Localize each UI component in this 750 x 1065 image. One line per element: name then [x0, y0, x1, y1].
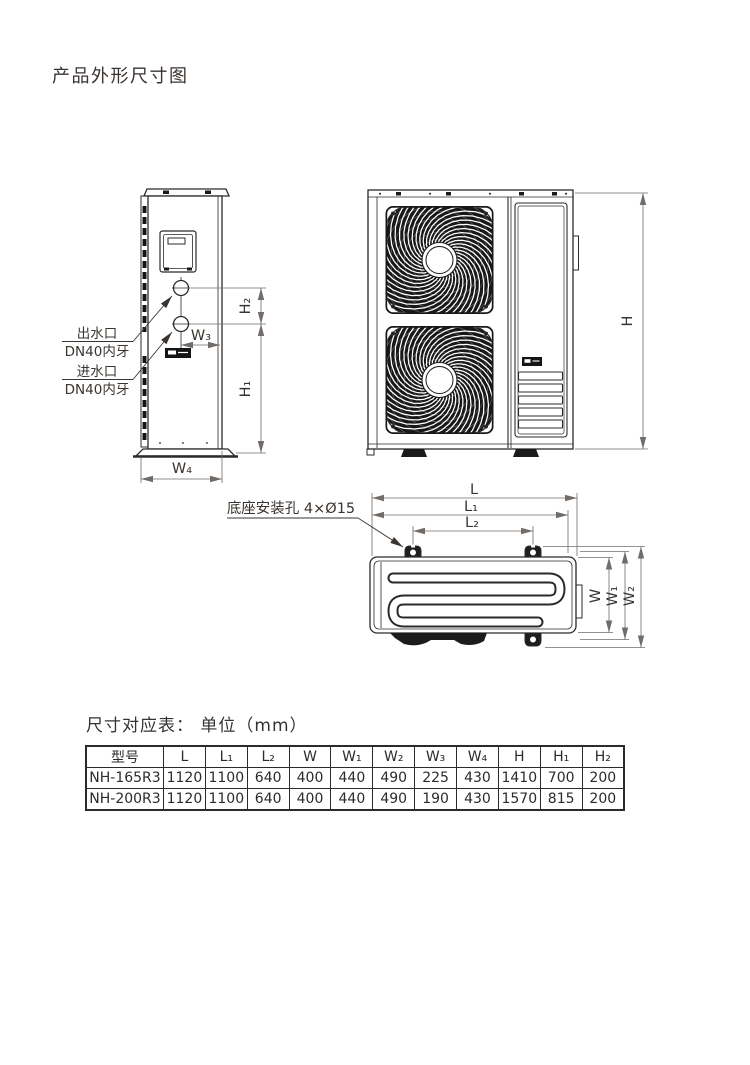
col-header-w1: W₁	[331, 746, 373, 768]
dimension-table-section: 尺寸对应表： 单位（mm） 型号 L L₁ L₂ W W₁ W₂ W₃ W₄ H…	[85, 711, 645, 811]
outlet-spec-label: DN40内牙	[65, 344, 130, 360]
col-header-w4: W₄	[457, 746, 499, 768]
dimension-drawings: H₂ H₁ W₃ W₄ 出水口 DN40内牙 进水口 DN40内牙	[0, 0, 750, 700]
front-foot-left	[401, 449, 427, 457]
side-handle	[573, 236, 579, 270]
mounting-tab-bottom	[525, 633, 541, 646]
dim-label-w: W	[588, 589, 604, 603]
dim-label-w2: W₂	[622, 586, 638, 606]
side-nameplate	[165, 348, 191, 358]
table-row: NH-165R3 1120 1100 640 400 440 490 225 4…	[86, 768, 624, 789]
col-header-h1: H₁	[540, 746, 582, 768]
col-header-l2: L₂	[247, 746, 289, 768]
front-view-drawing	[365, 185, 579, 457]
col-header-w3: W₃	[415, 746, 457, 768]
cell-value: 490	[373, 789, 415, 811]
cell-value: 640	[247, 768, 289, 789]
col-header-w: W	[289, 746, 331, 768]
cell-value: 1570	[498, 789, 540, 811]
cell-value: 640	[247, 789, 289, 811]
dim-label-w4: W₄	[172, 461, 192, 477]
col-header-w2: W₂	[373, 746, 415, 768]
col-header-h: H	[498, 746, 540, 768]
cell-value: 200	[582, 789, 624, 811]
front-foot-right	[513, 449, 539, 457]
cell-value: 1100	[205, 789, 247, 811]
cell-value: 700	[540, 768, 582, 789]
side-top-cap	[144, 189, 229, 196]
cell-value: 1100	[205, 768, 247, 789]
cell-value: 815	[540, 789, 582, 811]
table-title: 尺寸对应表： 单位（mm）	[86, 711, 645, 736]
inlet-label: 进水口	[77, 364, 118, 380]
col-header-model: 型号	[86, 746, 164, 768]
cell-value: 490	[373, 768, 415, 789]
outlet-label: 出水口	[77, 326, 118, 342]
dim-label-w3: W₃	[191, 328, 211, 344]
front-view-dimensions	[575, 193, 648, 449]
cell-value: 200	[582, 768, 624, 789]
cell-value: 1120	[164, 789, 206, 811]
mounting-note: 底座安装孔 4×Ø15	[227, 500, 403, 547]
cell-value: 400	[289, 768, 331, 789]
table-row: NH-200R3 1120 1100 640 400 440 490 190 4…	[86, 789, 624, 811]
cell-value: 430	[457, 789, 499, 811]
cell-model: NH-165R3	[86, 768, 164, 789]
dim-label-h1: H₁	[238, 380, 254, 397]
dimension-table: 型号 L L₁ L₂ W W₁ W₂ W₃ W₄ H H₁ H₂ NH-165R…	[85, 745, 625, 811]
dim-label-l1: L₁	[464, 499, 478, 515]
mounting-tab-right	[525, 545, 541, 559]
table-header-row: 型号 L L₁ L₂ W W₁ W₂ W₃ W₄ H H₁ H₂	[86, 746, 624, 768]
col-header-l1: L₁	[205, 746, 247, 768]
cell-model: NH-200R3	[86, 789, 164, 811]
dim-label-h: H	[620, 316, 636, 327]
cell-value: 440	[331, 768, 373, 789]
dim-label-w1: W₁	[605, 586, 621, 606]
dim-label-h2: H₂	[238, 298, 254, 315]
cell-value: 225	[415, 768, 457, 789]
cell-value: 1120	[164, 768, 206, 789]
top-view-drawing	[370, 545, 582, 647]
inlet-spec-label: DN40内牙	[65, 382, 130, 398]
top-bottom-fan-edge	[390, 633, 487, 645]
col-header-l: L	[164, 746, 206, 768]
cell-value: 1410	[498, 768, 540, 789]
top-right-bracket	[576, 585, 582, 618]
cell-value: 190	[415, 789, 457, 811]
cell-value: 440	[331, 789, 373, 811]
cell-value: 400	[289, 789, 331, 811]
dim-label-l2: L₂	[465, 515, 479, 531]
mounting-note-label: 底座安装孔 4×Ø15	[227, 500, 355, 517]
dim-label-l: L	[470, 482, 478, 498]
col-header-h2: H₂	[582, 746, 624, 768]
side-base	[136, 449, 235, 456]
mounting-tab-left	[405, 545, 421, 559]
cell-value: 430	[457, 768, 499, 789]
